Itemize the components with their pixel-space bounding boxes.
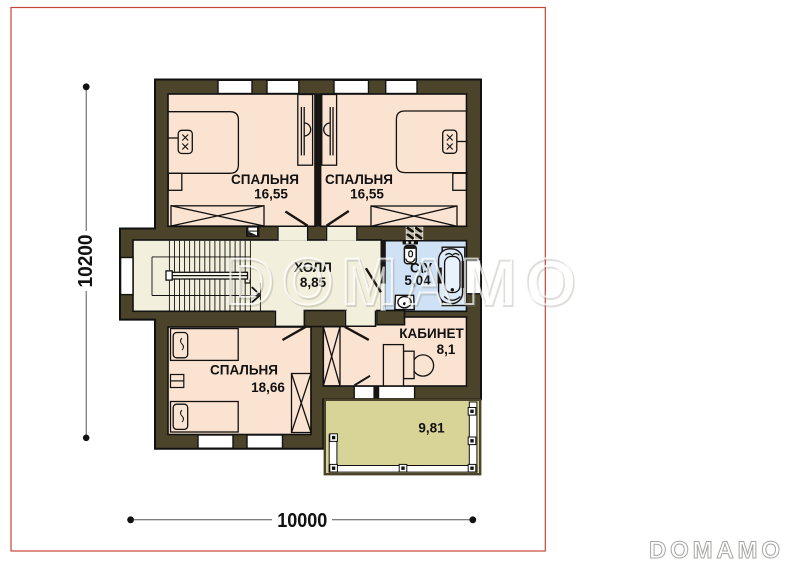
svg-text:10200: 10200 [75, 235, 97, 288]
svg-text:9,81: 9,81 [418, 420, 445, 435]
svg-text:СПАЛЬНЯ: СПАЛЬНЯ [325, 172, 393, 187]
svg-text:18,66: 18,66 [251, 380, 285, 395]
svg-text:8,1: 8,1 [437, 342, 456, 357]
svg-text:16,55: 16,55 [254, 187, 288, 202]
svg-text:16,55: 16,55 [350, 187, 384, 202]
svg-text:СПАЛЬНЯ: СПАЛЬНЯ [210, 363, 278, 378]
svg-text:КАБИНЕТ: КАБИНЕТ [399, 326, 464, 341]
svg-text:СПАЛЬНЯ: СПАЛЬНЯ [231, 172, 299, 187]
svg-text:10000: 10000 [277, 510, 327, 532]
